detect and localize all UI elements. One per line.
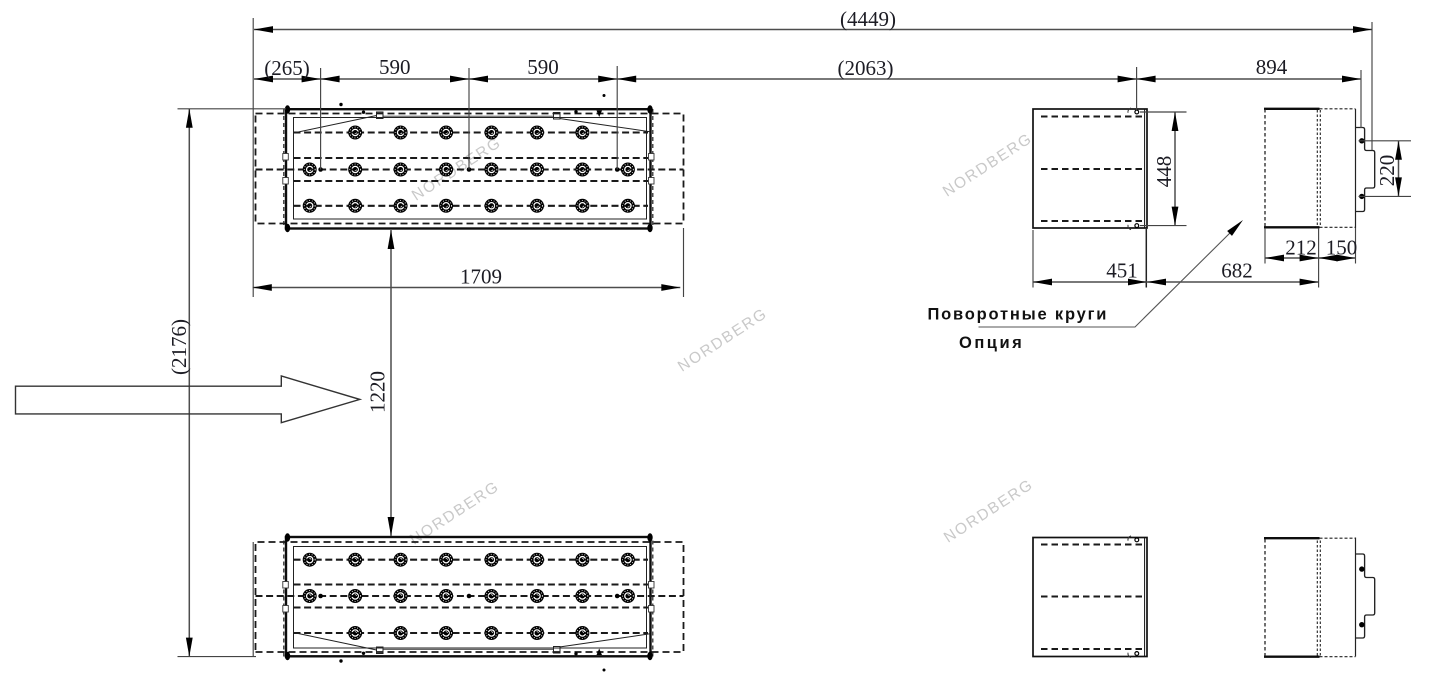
svg-text:1220: 1220 xyxy=(366,371,390,413)
svg-text:894: 894 xyxy=(1256,55,1288,79)
svg-text:Опция: Опция xyxy=(959,334,1024,352)
svg-text:Поворотные круги: Поворотные круги xyxy=(928,306,1109,324)
svg-text:(2063): (2063) xyxy=(838,56,894,80)
svg-text:(2176): (2176) xyxy=(167,319,191,375)
svg-text:(265): (265) xyxy=(264,56,310,80)
svg-text:(4449): (4449) xyxy=(840,7,896,31)
svg-text:220: 220 xyxy=(1375,155,1399,187)
svg-text:682: 682 xyxy=(1221,259,1253,283)
svg-text:448: 448 xyxy=(1152,156,1176,188)
svg-text:590: 590 xyxy=(527,55,559,79)
svg-text:150: 150 xyxy=(1326,236,1358,260)
svg-text:451: 451 xyxy=(1106,259,1138,283)
svg-text:1709: 1709 xyxy=(460,265,502,289)
svg-text:590: 590 xyxy=(379,55,411,79)
svg-text:212: 212 xyxy=(1285,236,1317,260)
